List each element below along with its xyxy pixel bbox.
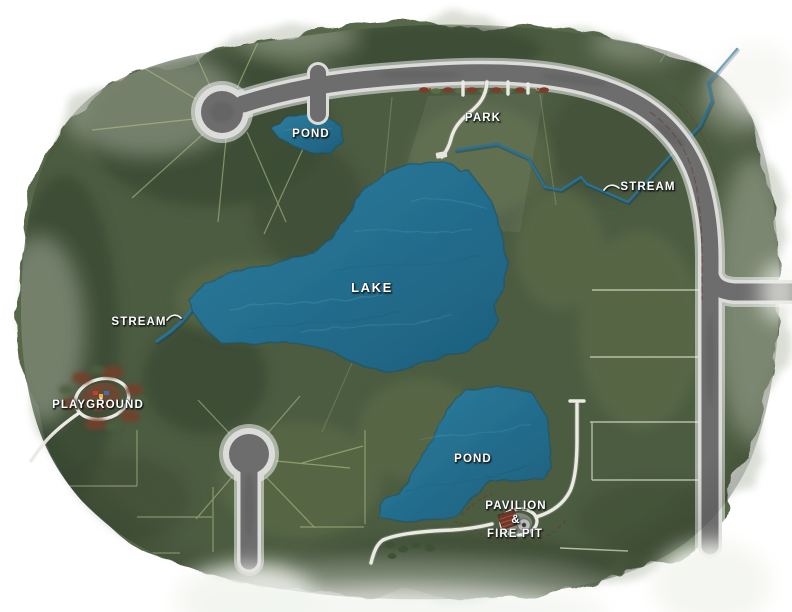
pavilion-label-line2: & xyxy=(511,514,520,526)
map-canvas: LAKE POND POND PARK STREAM STREAM PLAYGR… xyxy=(0,0,792,612)
site-plan-map: LAKE POND POND PARK STREAM STREAM PLAYGR… xyxy=(0,0,792,612)
playground-label: PLAYGROUND xyxy=(52,399,144,411)
park-label: PARK xyxy=(465,112,501,124)
upper-pond-label: POND xyxy=(292,128,330,140)
vignette xyxy=(0,0,792,612)
pavilion-label-line1: PAVILION xyxy=(485,500,546,512)
pavilion-label-line3: FIRE PIT xyxy=(487,528,543,540)
lake-label: LAKE xyxy=(351,280,393,295)
west-stream-label: STREAM xyxy=(111,316,166,328)
lower-pond-label: POND xyxy=(454,453,492,465)
east-stream-label: STREAM xyxy=(620,181,675,193)
